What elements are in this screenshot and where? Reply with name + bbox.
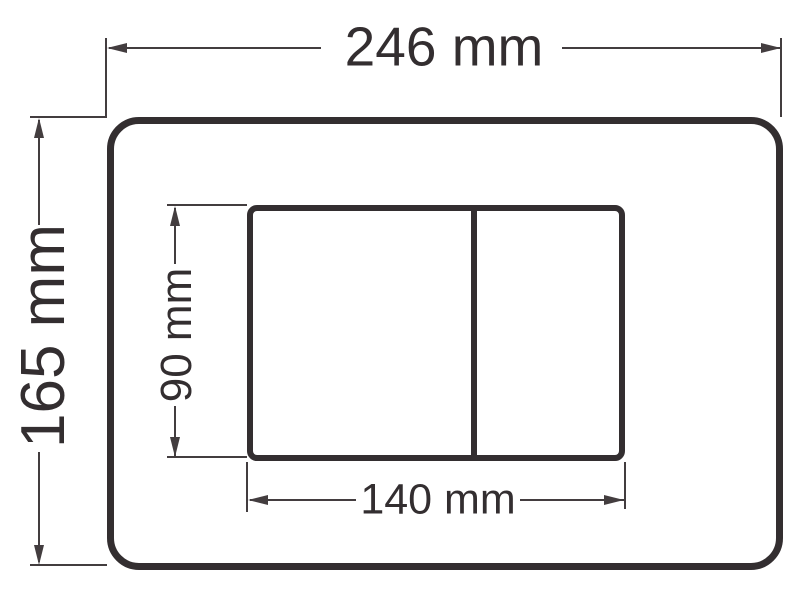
plate-height-dimension-label: 165 mm	[13, 224, 75, 448]
arrow-up-icon	[170, 206, 180, 226]
dimension-line	[109, 47, 321, 49]
arrow-down-icon	[170, 437, 180, 457]
arrow-up-icon	[34, 118, 44, 138]
arrow-right-icon	[604, 495, 624, 505]
arrow-right-icon	[761, 43, 781, 53]
dimension-line	[562, 47, 780, 49]
extension-line	[624, 462, 626, 509]
technical-drawing-canvas: 246 mm 165 mm 90 mm 140 mm	[0, 0, 800, 599]
button-divider-line	[471, 208, 477, 458]
arrow-left-icon	[248, 495, 268, 505]
plate-width-dimension-label: 246 mm	[345, 20, 544, 75]
button-height-dimension-label: 90 mm	[155, 268, 199, 402]
arrow-left-icon	[107, 43, 127, 53]
button-panel-outline	[247, 205, 625, 461]
arrow-down-icon	[34, 545, 44, 565]
button-width-dimension-label: 140 mm	[360, 479, 515, 522]
